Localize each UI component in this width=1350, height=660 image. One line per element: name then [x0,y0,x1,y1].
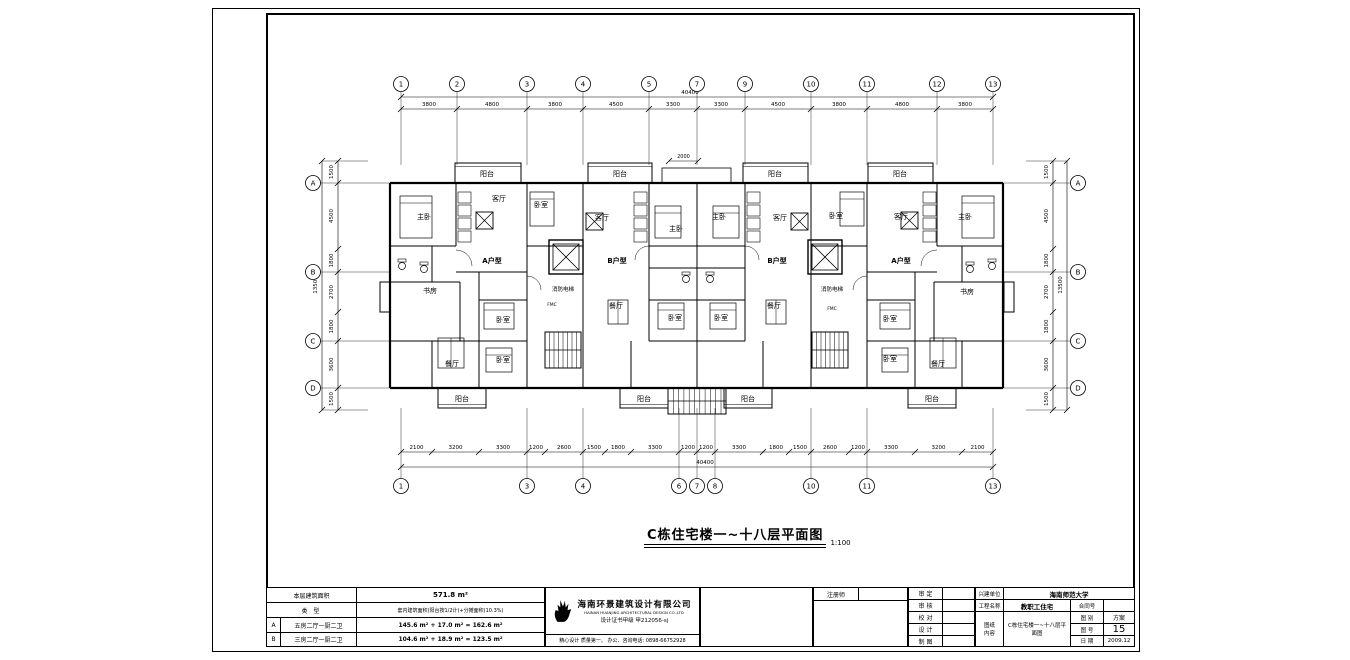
room-label: 阳台 [925,394,939,403]
room-label: 餐厅 [445,359,459,368]
type-value: 方案 [1104,612,1134,624]
dim-value: 3300 [884,445,898,451]
room-label: 卧室 [714,313,728,322]
dim-value: 2000 [677,154,690,160]
project-block: 兴建单位 海南师范大学 工程名称 教职工住宅 合同号 图纸内容 C栋住宅楼一~十… [975,587,1135,647]
area-table-r1-label: 本层建筑面积 [267,588,357,603]
dim-value: 3300 [714,102,728,108]
room-label: 书房 [960,287,974,296]
dim-value: 1800 [1044,319,1050,333]
axis-bubble-label: C [1076,338,1081,346]
registrar-value [859,588,907,601]
dim-value: 3800 [958,102,972,108]
axis-bubble-label: 7 [695,81,699,89]
company-logo-icon [553,599,573,623]
area-table-r4-value: 104.6 m² + 18.9 m² = 123.5 m² [357,633,544,646]
type-label: 图 别 [1071,612,1104,624]
room-label: 餐厅 [931,359,945,368]
room-label: 卧室 [668,313,682,322]
date-label: 日 期 [1071,636,1104,646]
room-label: 餐厅 [767,301,781,310]
axis-bubble-label: 4 [581,81,586,89]
axis-bubble-label: C [311,338,316,346]
client-value: 海南师范大学 [1004,588,1134,600]
dim-value: 3300 [732,445,746,451]
dim-value: 4800 [895,102,909,108]
approval-label: 制 图 [909,636,943,646]
dim-value: 1500 [1044,165,1050,179]
company-name-en: HAINAN HUANJING ARCHITECTURAL DESIGN CO.… [580,610,688,615]
area-table-r2-value: 套内建筑面积(阳台按1/2计)+分摊面积(10.3%) [357,603,544,618]
room-label: 阳台 [741,394,755,403]
dim-value: 3300 [496,445,510,451]
room-label: 客厅 [894,212,908,221]
dim-value: 1800 [329,253,335,267]
project-value: 教职工住宅 [1004,600,1071,612]
axis-bubble-label: 8 [713,483,717,491]
approval-value [943,636,974,646]
dim-value: 4500 [771,102,785,108]
dim-value: 1500 [329,392,335,406]
dim-value: 3800 [548,102,562,108]
dim-value: 3800 [832,102,846,108]
axis-bubble-label: 12 [933,81,942,89]
room-label: 消防电梯 [552,285,575,293]
dim-total: 13500 [1058,276,1064,294]
room-label: 书房 [423,286,437,295]
grid-lines [321,92,1071,479]
axis-bubble-label: 13 [989,81,998,89]
room-label: 主卧 [669,224,683,233]
area-table-r3-type: 五房二厅一厨二卫 [281,618,357,633]
content-value: C栋住宅楼一~十八层平面图 [1004,612,1071,646]
area-table-r1-value: 571.8 m² [357,588,544,603]
dim-value: 2100 [971,445,985,451]
room-label: FMC [827,306,837,312]
axis-bubble-label: 11 [863,81,872,89]
dim-value: 1200 [681,445,695,451]
approvals-block: 审 定 审 核 校 对 设 计 制 图 [908,587,975,647]
dim-value: 4500 [1044,209,1050,223]
dim-value: 3600 [1044,357,1050,371]
company-block: 海南环景建筑设计有限公司 HAINAN HUANJING ARCHITECTUR… [545,587,700,647]
approval-value [943,588,974,600]
dim-value: 3300 [666,102,680,108]
room-label: 主卧 [417,212,431,221]
dim-value: 3800 [422,102,436,108]
room-label: 主卧 [958,212,972,221]
dim-value: 4500 [329,209,335,223]
dim-value: 1800 [1044,253,1050,267]
contract-label: 合同号 [1071,600,1104,612]
room-label: 卧室 [496,315,510,324]
room-label: 卧室 [829,211,843,220]
room-label: A户型 [482,256,501,265]
axis-bubble-label: B [1076,269,1081,277]
drawing-sheet: 3800480038004500330033004500380048003800… [0,0,1350,660]
axis-bubble-label: 3 [525,81,529,89]
axis-bubble-label: 10 [807,483,816,491]
room-label: 客厅 [492,194,506,203]
dim-value: 3200 [932,445,946,451]
room-label: 卧室 [883,354,897,363]
dim-value: 1500 [793,445,807,451]
dim-value: 1500 [587,445,601,451]
axis-bubble-label: 2 [455,81,459,89]
dim-value: 2700 [329,285,335,299]
room-label: 阳台 [893,169,907,178]
room-label: 卧室 [883,314,897,323]
area-table: 本层建筑面积 571.8 m² 类 型 套内建筑面积(阳台按1/2计)+分摊面积… [266,587,545,647]
drawing-title-text: C栋住宅楼一~十八层平面图 [644,524,826,548]
room-label: B户型 [767,256,786,265]
axis-bubble-label: A [1076,180,1081,188]
area-table-r4-type: 三房二厅一厨二卫 [281,633,357,646]
floor-plan: 3800480038004500330033004500380048003800… [0,0,1350,660]
contract-value [1104,600,1134,612]
number-value: 15 [1104,624,1134,636]
drawing-title: C栋住宅楼一~十八层平面图 1:100 [644,524,851,548]
dim-value: 1800 [611,445,625,451]
dim-total: 40400 [696,460,714,466]
dim-value: 2700 [1044,285,1050,299]
area-table-r4-key: B [267,633,281,646]
room-label: 阳台 [480,169,494,178]
approval-label: 校 对 [909,612,943,624]
dim-value: 4800 [485,102,499,108]
approval-label: 审 核 [909,600,943,612]
walls [390,183,1003,388]
dim-value: 2600 [823,445,837,451]
axis-bubble-label: 4 [581,483,586,491]
axis-bubble-label: D [310,385,315,393]
room-label: A户型 [891,256,910,265]
dim-value: 1200 [699,445,713,451]
registrar-label: 注册师 [814,588,859,601]
dim-value: 1200 [851,445,865,451]
dim-value: 2100 [410,445,424,451]
room-label: 主卧 [712,212,726,221]
room-label: FMC [547,302,557,308]
elevators [549,240,842,274]
axis-bubble-label: A [311,180,316,188]
room-label: B户型 [607,256,626,265]
dim-value: 2600 [557,445,571,451]
area-table-r3-key: A [267,618,281,633]
axis-bubble-label: B [311,269,316,277]
grid-bubbles: 123457910111213134678101113AABBCCDD [306,77,1086,494]
room-label: 餐厅 [609,301,623,310]
drawing-scale: 1:100 [830,539,850,548]
seal-box [700,587,813,647]
approval-value [943,612,974,624]
axis-bubble-label: 6 [677,483,682,491]
registrar-block: 注册师 [813,587,908,647]
dim-value: 3600 [329,357,335,371]
room-label: 卧室 [496,355,510,364]
axis-bubble-label: 11 [863,483,872,491]
number-label: 图 号 [1071,624,1104,636]
room-label: 消防电梯 [821,285,844,293]
area-table-r3-value: 145.6 m² + 17.0 m² = 162.6 m² [357,618,544,633]
dim-value: 1800 [329,319,335,333]
area-table-r2-label: 类 型 [267,603,357,618]
dim-value: 1500 [329,165,335,179]
axis-bubble-label: 1 [399,483,403,491]
dim-value: 1500 [1044,392,1050,406]
company-name-cn: 海南环景建筑设计有限公司 [577,598,691,610]
axis-bubble-label: 3 [525,483,529,491]
dim-value: 1800 [769,445,783,451]
approval-value [943,624,974,636]
room-label: 客厅 [773,213,787,222]
room-label: 客厅 [595,213,609,222]
room-label: 阳台 [455,394,469,403]
dim-value: 1200 [529,445,543,451]
axis-bubble-label: 10 [807,81,816,89]
axis-bubble-label: 5 [647,81,651,89]
room-label: 阳台 [768,169,782,178]
dim-value: 4500 [609,102,623,108]
company-main: 海南环景建筑设计有限公司 HAINAN HUANJING ARCHITECTUR… [546,588,699,634]
axis-bubble-label: D [1075,385,1080,393]
company-cert: 设计证书甲级 甲212056-sj [577,616,691,624]
approval-value [943,600,974,612]
company-tagline: 精心设计 质量第一。 办公、咨询电话: 0898-66752928 [546,634,699,646]
client-label: 兴建单位 [976,588,1004,600]
axis-bubble-label: 13 [989,483,998,491]
project-label: 工程名称 [976,600,1004,612]
dim-value: 3200 [449,445,463,451]
axis-bubble-label: 7 [695,483,699,491]
dimension-lines: 3800480038004500330033004500380048003800… [313,90,1070,470]
approval-label: 设 计 [909,624,943,636]
approval-label: 审 定 [909,588,943,600]
dim-value: 3300 [648,445,662,451]
room-label: 阳台 [613,169,627,178]
axis-bubble-label: 9 [743,81,747,89]
date-value: 2009.12 [1104,636,1134,646]
content-label: 图纸内容 [976,612,1004,646]
room-label: 阳台 [637,394,651,403]
room-labels: 阳台阳台阳台阳台阳台阳台阳台阳台主卧客厅A户型书房卧室卧室餐厅卧室客厅B户型主卧… [417,169,974,403]
axis-bubble-label: 1 [399,81,403,89]
room-label: 卧室 [534,200,548,209]
